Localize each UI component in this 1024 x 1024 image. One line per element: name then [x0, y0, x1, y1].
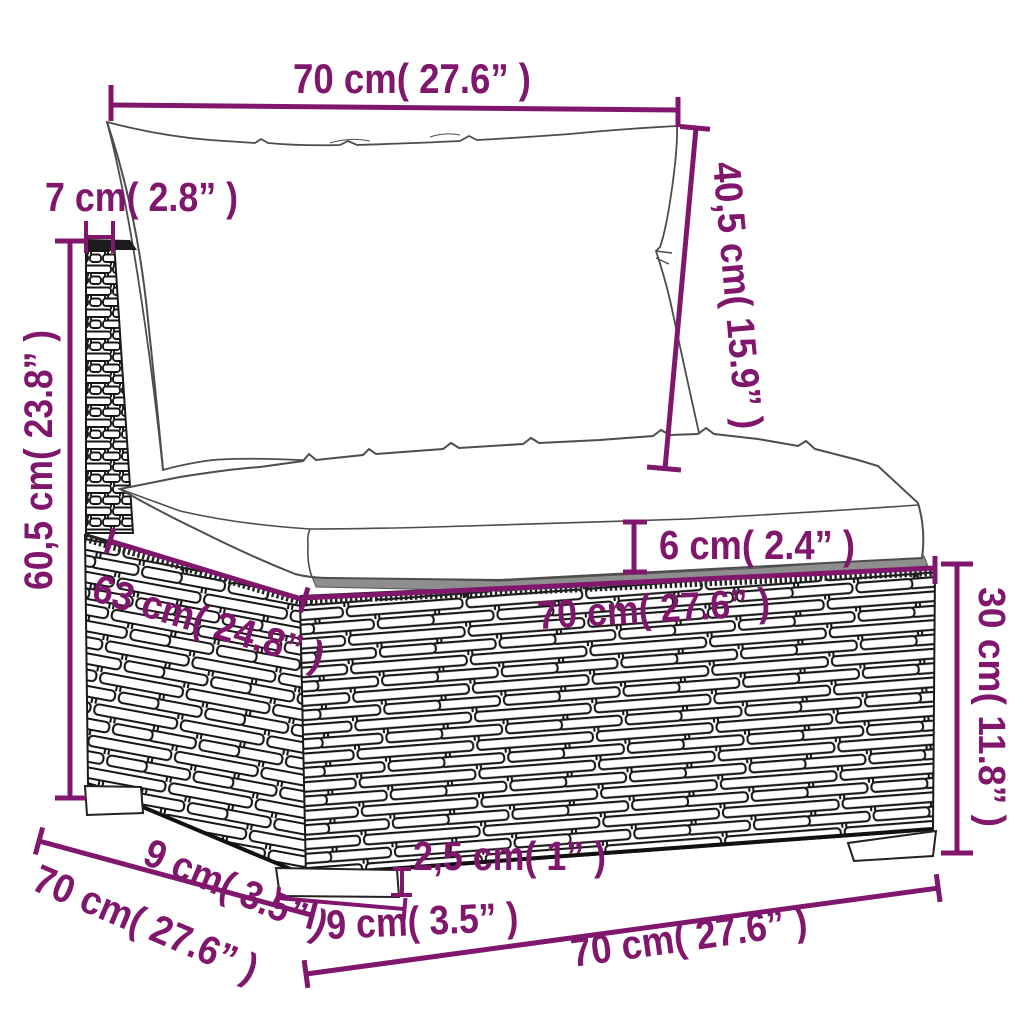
svg-text:70 cm( 27.6” ): 70 cm( 27.6” )	[293, 55, 531, 102]
svg-text:60,5 cm( 23.8” ): 60,5 cm( 23.8” )	[17, 330, 61, 590]
svg-text:9 cm( 3.5” ): 9 cm( 3.5” )	[325, 894, 519, 948]
svg-text:6 cm( 2.4” ): 6 cm( 2.4” )	[659, 522, 855, 568]
svg-text:2,5 cm( 1” ): 2,5 cm( 1” )	[413, 833, 606, 879]
svg-text:30 cm( 11.8” ): 30 cm( 11.8” )	[970, 587, 1012, 827]
svg-text:7 cm( 2.8” ): 7 cm( 2.8” )	[45, 174, 238, 220]
